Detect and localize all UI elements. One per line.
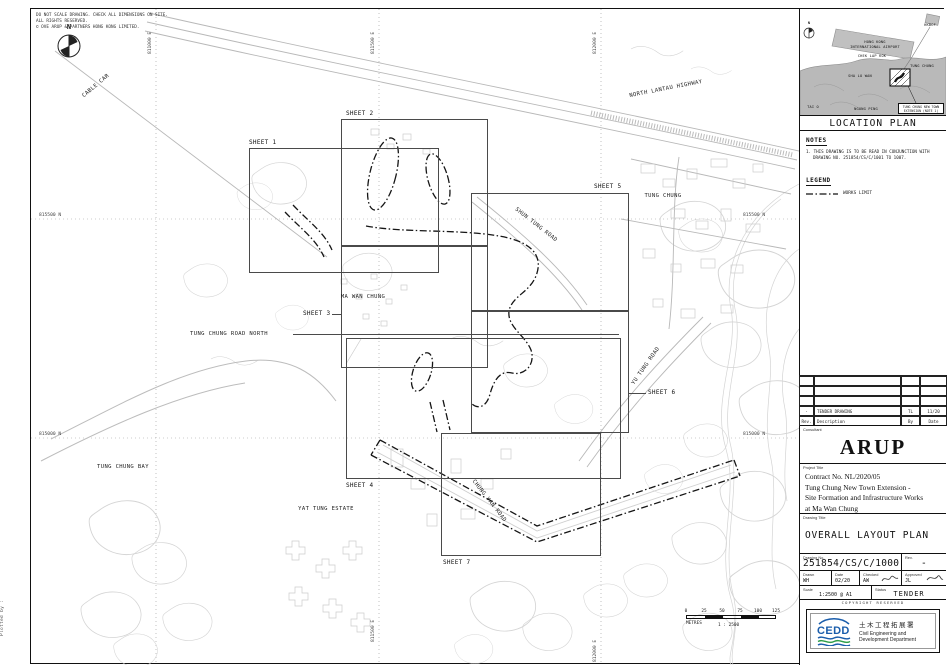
tung-chung-road-north-label: TUNG CHUNG ROAD NORTH xyxy=(190,331,268,337)
scale-tick-125: 125 xyxy=(772,609,780,614)
project-title-label: Project Title xyxy=(803,465,823,470)
location-plan-north-arrow-icon xyxy=(804,28,814,38)
location-plan-north-label: N xyxy=(808,21,810,25)
site-extent-callout: TUNG CHUNG NEW TOWN EXTENSION (NOTE 1) xyxy=(898,103,944,114)
note-line-2: DRAWING NO. 251854/CS/C/1001 TO 1007. xyxy=(813,155,906,160)
location-plan-title: LOCATION PLAN xyxy=(800,116,946,131)
cedd-logo: CEDD xyxy=(815,616,853,646)
drawn-value: WH xyxy=(803,578,809,584)
cedd-acronym: CEDD xyxy=(817,625,850,637)
scale-label: Scale xyxy=(803,587,813,592)
cedd-name-chinese: 土木工程拓展署 xyxy=(859,619,916,629)
northing-815500-right: 815500 N xyxy=(743,213,765,218)
sheet-2-boundary xyxy=(341,119,488,246)
sheet-1-label: SHEET 1 xyxy=(249,139,276,146)
easting-811000-top: 811000 E xyxy=(148,32,153,54)
date-label: Date xyxy=(835,572,843,577)
northing-815000-left: 815000 N xyxy=(39,432,61,437)
north-arrow-icon xyxy=(58,35,80,57)
scale-tick-0: 0 xyxy=(685,609,688,614)
revision-row-desc: TENDER DRAWING xyxy=(814,406,901,416)
yat-tung-estate-label: YAT TUNG ESTATE xyxy=(298,506,354,512)
sheet-6-leader-line xyxy=(629,393,646,394)
cedd-name-english-2: Development Department xyxy=(859,637,916,644)
tung-chung-label: TUNG CHUNG xyxy=(644,193,681,199)
overall-layout-map: DO NOT SCALE DRAWING. CHECK ALL DIMENSIO… xyxy=(31,9,799,665)
plot-info-text: Plotted by : xyxy=(0,600,5,636)
status-value: TENDER xyxy=(893,590,924,598)
scale-tick-50: 50 xyxy=(719,609,724,614)
sheet-5-label: SHEET 5 xyxy=(594,183,621,190)
sheet-4-label: SHEET 4 xyxy=(346,482,373,489)
project-line-1: Contract No. NL/2020/05 xyxy=(805,472,941,483)
revision-row-date: 11/20 xyxy=(920,406,947,416)
scale-bar-unit: METRES xyxy=(686,621,702,626)
disclaimer-line-3: © OVE ARUP & PARTNERS HONG KONG LIMITED. xyxy=(36,25,168,31)
drawing-number-block: Drawing No. 251854/CS/C/1000 Rev. - Draw… xyxy=(800,553,946,600)
loc-tung-chung-label: TUNG CHUNG xyxy=(910,64,934,68)
northing-815500-left: 815500 N xyxy=(39,213,61,218)
easting-812000-bottom: 812000 E xyxy=(593,640,598,662)
scale-tick-25: 25 xyxy=(701,609,706,614)
tung-chung-bay-label: TUNG CHUNG BAY xyxy=(97,464,149,470)
loc-chek-lap-kok-label: CHEK LAP KOK xyxy=(858,54,886,58)
loc-sha-lo-wan-label: SHA LO WAN xyxy=(848,74,872,78)
notes-heading: NOTES xyxy=(806,137,827,146)
revision-row-rev: - xyxy=(799,406,814,416)
loc-airport-label-2: INTERNATIONAL AIRPORT xyxy=(850,45,900,49)
legend-heading: LEGEND xyxy=(806,177,831,186)
scale-tick-100: 100 xyxy=(754,609,762,614)
rev-label: Rev. xyxy=(905,555,913,560)
scale-tick-75: 75 xyxy=(737,609,742,614)
northing-815000-right: 815000 N xyxy=(743,432,765,437)
drawing-title-label: Drawing Title xyxy=(803,515,826,520)
site-extent-callout-line-2: EXTENSION (NOTE 1) xyxy=(899,109,943,113)
loc-tai-o-label: TAI O xyxy=(807,105,819,109)
project-line-3: Site Formation and Infrastructure Works xyxy=(805,493,941,504)
approved-value: JL xyxy=(905,578,911,584)
sheet-7-boundary xyxy=(441,433,601,556)
location-plan: N HONG KONG INTERNATIONAL AIRPORT CHEK L… xyxy=(800,9,946,116)
sheet-5-boundary xyxy=(471,193,629,311)
rev-value: - xyxy=(921,558,927,569)
drawn-label: Drawn xyxy=(803,572,814,577)
status-label: Status xyxy=(875,587,886,592)
revision-table: - TENDER DRAWING TL 11/20 Rev. Descripti… xyxy=(799,375,947,426)
drawing-no: 251854/CS/C/1000 xyxy=(803,558,899,569)
easting-812000-top: 812000 E xyxy=(593,32,598,54)
sheet-3-label: SHEET 3 xyxy=(303,310,330,317)
consultant-label: Consultant xyxy=(803,427,822,432)
disclaimer-line-1: DO NOT SCALE DRAWING. CHECK ALL DIMENSIO… xyxy=(36,13,168,19)
scale-value: 1:2500 @ A1 xyxy=(819,592,852,598)
sheet-3-leader-line xyxy=(332,314,341,315)
loc-ngong-ping-label: NGONG PING xyxy=(854,107,878,111)
sheet-7-label: SHEET 7 xyxy=(443,559,470,566)
drawing-sheet: Plotted by : xyxy=(0,0,950,671)
legend-works-limit-label: WORKS LIMIT xyxy=(843,191,872,196)
easting-811500-bottom: 811500 E xyxy=(371,620,376,642)
checked-value: AW xyxy=(863,578,869,584)
tung-chung-road-north-leader xyxy=(293,334,619,335)
works-limit-symbol xyxy=(806,192,838,196)
note-line-1: 1. THIS DRAWING IS TO BE READ IN CONJUNC… xyxy=(806,149,930,154)
project-line-2: Tung Chung New Town Extension - xyxy=(805,483,941,494)
sheet-6-boundary xyxy=(471,311,629,433)
scale-bar: 0 25 50 75 100 125 METRES 1 : 2500 xyxy=(686,609,796,628)
legend-works-limit-row: WORKS LIMIT xyxy=(806,191,872,196)
scale-bar-segments xyxy=(686,615,776,619)
consultant-box: Consultant ARUP xyxy=(800,425,946,463)
checked-label: Checked xyxy=(863,572,878,577)
loc-hkbcf-label: HKBCF xyxy=(924,23,936,27)
drawing-title-box: Drawing Title OVERALL LAYOUT PLAN xyxy=(800,513,946,553)
north-arrow-label: N xyxy=(67,23,71,31)
loc-airport-label-1: HONG KONG xyxy=(864,40,885,44)
project-title-box: Project Title Contract No. NL/2020/05 Tu… xyxy=(800,463,946,513)
copyright-note: COPYRIGHT RESERVED xyxy=(800,600,946,605)
title-block-panel: N HONG KONG INTERNATIONAL AIRPORT CHEK L… xyxy=(799,9,945,665)
easting-811500-top: 811500 E xyxy=(371,32,376,54)
drawing-frame: DO NOT SCALE DRAWING. CHECK ALL DIMENSIO… xyxy=(30,8,944,664)
sheet-2-label: SHEET 2 xyxy=(346,110,373,117)
cedd-department-box: CEDD 土木工程拓展署 Civil Engineering and Devel… xyxy=(806,609,940,653)
checked-signature xyxy=(881,574,899,583)
scale-bar-ratio: 1 : 2500 xyxy=(718,623,739,628)
approved-signature xyxy=(926,574,944,583)
revision-row-by: TL xyxy=(901,406,920,416)
sheet-6-label: SHEET 6 xyxy=(648,389,675,396)
ma-wan-chung-label: MA WAN CHUNG xyxy=(341,294,386,300)
approved-label: Approved xyxy=(905,572,922,577)
coastline xyxy=(41,360,336,461)
date-value: 02/20 xyxy=(835,578,850,584)
disclaimer-note: DO NOT SCALE DRAWING. CHECK ALL DIMENSIO… xyxy=(36,13,168,30)
